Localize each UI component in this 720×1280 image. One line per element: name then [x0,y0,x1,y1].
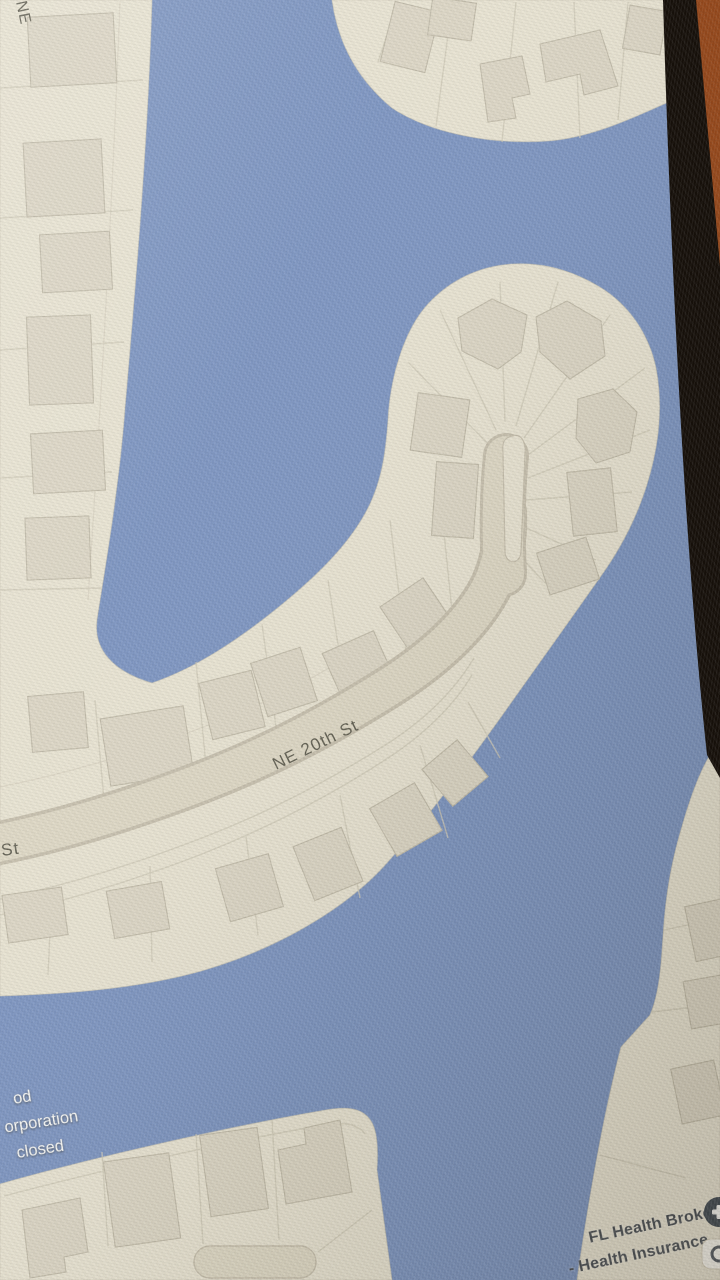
map-photo: NE 20th St St NE od orporation closed FL… [0,0,720,1280]
photo-glare-overlay [0,0,720,1280]
map-canvas[interactable]: NE 20th St St NE od orporation closed FL… [0,0,720,1280]
